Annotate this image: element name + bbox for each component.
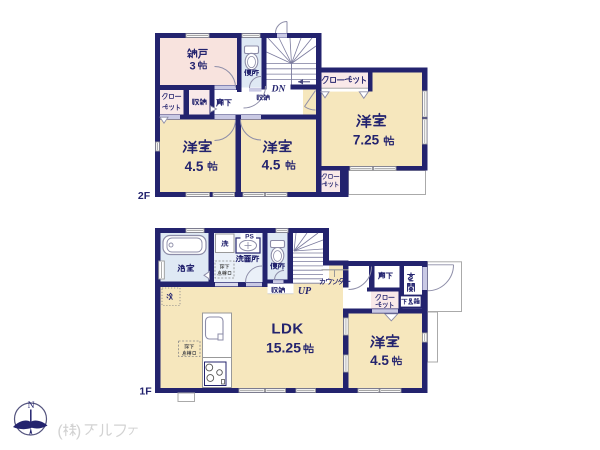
svg-text:): )	[76, 423, 81, 440]
svg-text:(: (	[57, 423, 63, 440]
svg-text:N: N	[28, 401, 35, 411]
svg-text:1F: 1F	[139, 386, 152, 398]
svg-text:4.5: 4.5	[370, 353, 389, 368]
svg-text:LDK: LDK	[271, 320, 303, 337]
svg-text:4.5: 4.5	[262, 158, 281, 173]
svg-text:7.25: 7.25	[353, 133, 380, 148]
svg-text:PS: PS	[245, 234, 254, 241]
svg-text:3: 3	[189, 61, 195, 73]
svg-text:UP: UP	[298, 286, 312, 297]
svg-text:2F: 2F	[138, 190, 151, 202]
svg-text:15.25: 15.25	[266, 340, 301, 356]
svg-text:4.5: 4.5	[185, 159, 204, 174]
svg-text:DN: DN	[271, 84, 287, 94]
